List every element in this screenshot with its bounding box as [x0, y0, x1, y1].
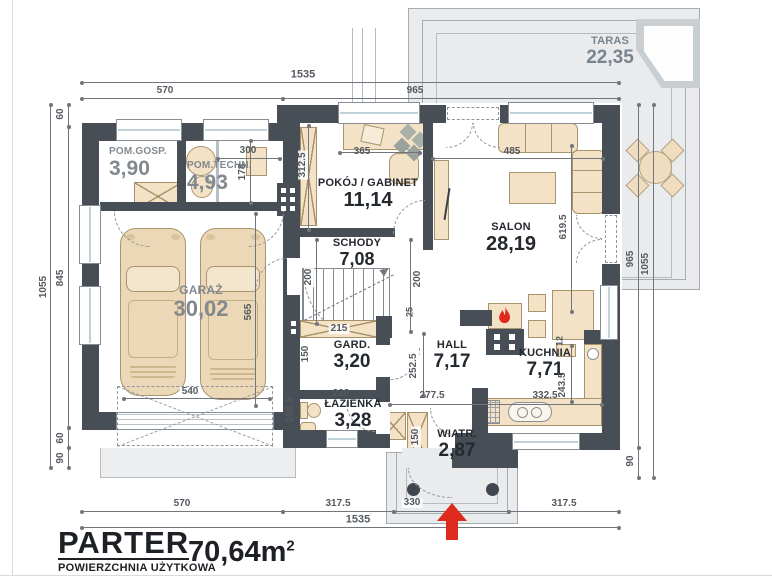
roof-line: [375, 28, 376, 105]
terrace-door: [447, 107, 499, 120]
dimension-line: [638, 448, 639, 478]
sheet-edge-bottom: [0, 575, 772, 576]
dimension-label: 540: [180, 387, 201, 397]
dimension-line: [68, 448, 69, 468]
dimension-label: 485: [504, 147, 521, 157]
window: [79, 286, 101, 345]
dimension-label: 317.5: [551, 499, 576, 509]
dimension-label: 845: [56, 270, 66, 287]
dimension-label: 317.5: [325, 499, 350, 509]
dimension-line: [218, 158, 280, 159]
wall: [82, 123, 99, 430]
dimension-label: 200: [413, 271, 423, 288]
floor-plan: POM.GOSP. 3,90 POM.TECHN. 4,93 GARAŻ 30,…: [0, 0, 772, 580]
toilet-bowl: [307, 403, 321, 418]
dimension-label: 619.5: [559, 212, 569, 241]
dimension-label: 12: [556, 336, 565, 346]
dimension-line: [82, 511, 283, 512]
dimension-label: 332.5: [532, 391, 557, 401]
door-opening: [287, 258, 300, 295]
terrace-table: [639, 151, 672, 184]
dimension-label: 150: [301, 346, 311, 363]
room-label-salon: SALON 28,19: [486, 222, 536, 255]
roof-line: [362, 28, 363, 105]
hob: [587, 348, 599, 360]
dimension-line: [68, 127, 69, 428]
room-label-lazienka: ŁAZIENKA 3,28: [324, 399, 381, 431]
dimension-label: 330: [402, 498, 423, 508]
dimension-label: 1535: [344, 515, 372, 526]
dimension-label: 243.5: [558, 372, 568, 397]
dimension-label: 228: [333, 389, 350, 399]
dimension-label: 965: [407, 86, 424, 96]
dimension-label: 570: [174, 499, 191, 509]
dimension-line: [638, 105, 639, 448]
dimension-line: [308, 126, 309, 230]
dimension-label: 25: [406, 307, 415, 317]
dimension-line: [68, 105, 69, 127]
dimension-label: 312.5: [298, 150, 308, 179]
kitchen-sink: [508, 402, 552, 422]
porch-column: [486, 483, 499, 496]
dimension-line: [571, 346, 572, 402]
room-label-hall: HALL 7,17: [434, 340, 471, 372]
dimension-line: [283, 98, 619, 99]
dimension-line: [423, 334, 424, 396]
dimension-label: 200: [304, 267, 314, 288]
dimension-line: [283, 511, 394, 512]
dimension-line: [316, 240, 317, 324]
room-label-schody: SCHODY 7,08: [333, 238, 381, 269]
room-label-wiatr: WIATR. 2,87: [437, 429, 477, 461]
dining-chair: [528, 320, 546, 338]
dimension-line: [82, 98, 283, 99]
room-label-pokoj: POKÓJ / GABINET 11,14: [318, 178, 418, 211]
dimension-label: 570: [157, 86, 174, 96]
window: [203, 119, 269, 141]
wall: [460, 310, 492, 326]
roof-line: [352, 28, 353, 105]
flame-icon: [496, 306, 514, 326]
floor-title: PARTER: [58, 527, 189, 560]
dimension-label: 300: [240, 146, 257, 156]
area-sup: 2: [286, 537, 294, 554]
wall: [602, 105, 620, 450]
dining-chair: [528, 294, 546, 312]
dimension-line: [340, 152, 420, 153]
dimension-label: 1535: [291, 70, 315, 81]
fireplace: [488, 303, 522, 329]
dimension-line: [571, 146, 572, 312]
wall: [376, 316, 392, 338]
dimension-line: [255, 214, 256, 406]
dimension-line: [250, 141, 251, 203]
room-label-taras: TARAS 22,35: [586, 36, 634, 68]
terrace-door: [605, 215, 617, 263]
dimension-label: 178: [238, 164, 248, 181]
dimension-line: [433, 158, 603, 159]
area-value: 70,64m2: [188, 538, 295, 567]
window: [600, 285, 618, 340]
dimension-line: [124, 398, 270, 399]
window: [79, 205, 101, 264]
room-label-garaz: GARAŻ 30,02: [173, 284, 228, 321]
door-opening: [376, 345, 390, 377]
area-number: 70,64m: [188, 536, 286, 568]
dimension-label: 60: [56, 432, 66, 443]
dimension-line: [82, 82, 619, 83]
window: [512, 433, 580, 450]
dimension-label: 60: [56, 108, 66, 119]
dimension-line: [653, 105, 654, 478]
window: [338, 102, 420, 124]
wall: [177, 141, 186, 207]
sheet-edge-left: [12, 0, 13, 575]
dimension-label: 965: [626, 251, 636, 268]
dimension-label: 565: [244, 304, 254, 321]
dimension-label: 90: [56, 452, 66, 463]
dimension-label: 277.5: [419, 391, 444, 401]
window: [116, 119, 182, 141]
chimney: [287, 318, 300, 338]
dimension-label: 215: [329, 324, 350, 334]
dimension-label: 150: [411, 427, 421, 448]
dimension-label: 365: [354, 147, 371, 157]
dimension-line: [390, 404, 602, 405]
window: [508, 102, 594, 124]
dimension-line: [410, 240, 411, 332]
dimension-label: 90: [626, 455, 636, 466]
room-label-pom-gosp: POM.GOSP. 3,90: [109, 147, 167, 180]
dimension-line: [68, 428, 69, 448]
dimension-label: 1055: [641, 253, 651, 275]
dimension-label: 150.5: [286, 397, 296, 422]
dimension-line: [50, 105, 51, 468]
dimension-label: 1055: [39, 276, 49, 298]
dimension-line: [509, 511, 619, 512]
coffee-table: [509, 172, 556, 204]
dimension-label: 252.5: [409, 351, 419, 380]
window: [326, 430, 358, 448]
wall: [100, 202, 283, 211]
corner-sofa: [572, 150, 605, 214]
room-label-gard: GARD. 3,20: [334, 340, 371, 372]
